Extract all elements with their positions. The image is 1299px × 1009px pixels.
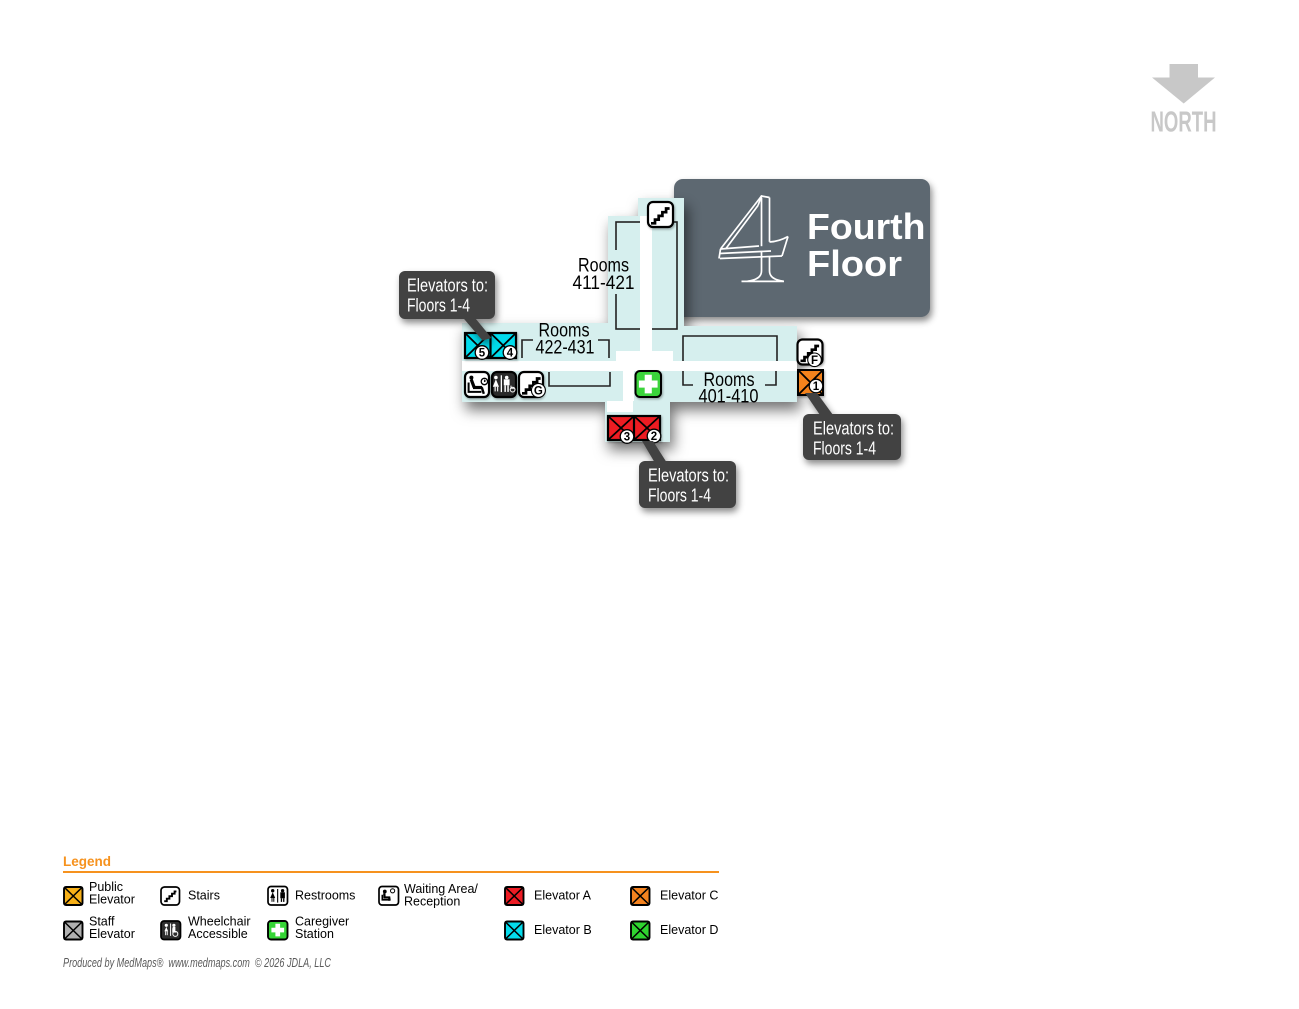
svg-text:Legend: Legend	[63, 854, 111, 869]
svg-text:G: G	[534, 386, 543, 398]
svg-text:Restrooms: Restrooms	[295, 889, 355, 903]
svg-text:411-421: 411-421	[573, 273, 635, 294]
svg-text:Floors 1-4: Floors 1-4	[648, 486, 711, 506]
svg-text:NORTH: NORTH	[1151, 107, 1217, 139]
svg-text:Reception: Reception	[404, 894, 460, 908]
svg-text:Elevator B: Elevator B	[534, 923, 592, 937]
svg-text:401-410: 401-410	[699, 386, 759, 407]
svg-text:Accessible: Accessible	[188, 927, 248, 941]
svg-text:Elevator D: Elevator D	[660, 923, 718, 937]
svg-text:Fourth: Fourth	[807, 206, 926, 247]
svg-text:Stairs: Stairs	[188, 889, 220, 903]
svg-text:Elevator C: Elevator C	[660, 889, 718, 903]
svg-text:Floor: Floor	[807, 243, 902, 284]
svg-text:1: 1	[813, 381, 820, 393]
svg-text:F: F	[811, 355, 818, 367]
svg-text:422-431: 422-431	[536, 338, 595, 359]
svg-text:Elevators to:: Elevators to:	[407, 276, 488, 296]
svg-text:Elevators to:: Elevators to:	[813, 419, 894, 439]
svg-text:5: 5	[479, 348, 486, 360]
svg-text:4: 4	[507, 348, 514, 360]
svg-text:Produced by MedMaps® www.medm: Produced by MedMaps® www.medmaps.com © 2…	[63, 955, 331, 970]
svg-text:3: 3	[624, 432, 630, 444]
svg-text:Floors 1-4: Floors 1-4	[407, 296, 470, 316]
svg-text:Elevators to:: Elevators to:	[648, 466, 729, 486]
svg-text:Elevator: Elevator	[89, 893, 135, 907]
svg-text:Station: Station	[295, 927, 334, 941]
svg-text:Elevator: Elevator	[89, 927, 135, 941]
svg-text:Elevator A: Elevator A	[534, 889, 592, 903]
svg-text:Floors 1-4: Floors 1-4	[813, 439, 876, 459]
